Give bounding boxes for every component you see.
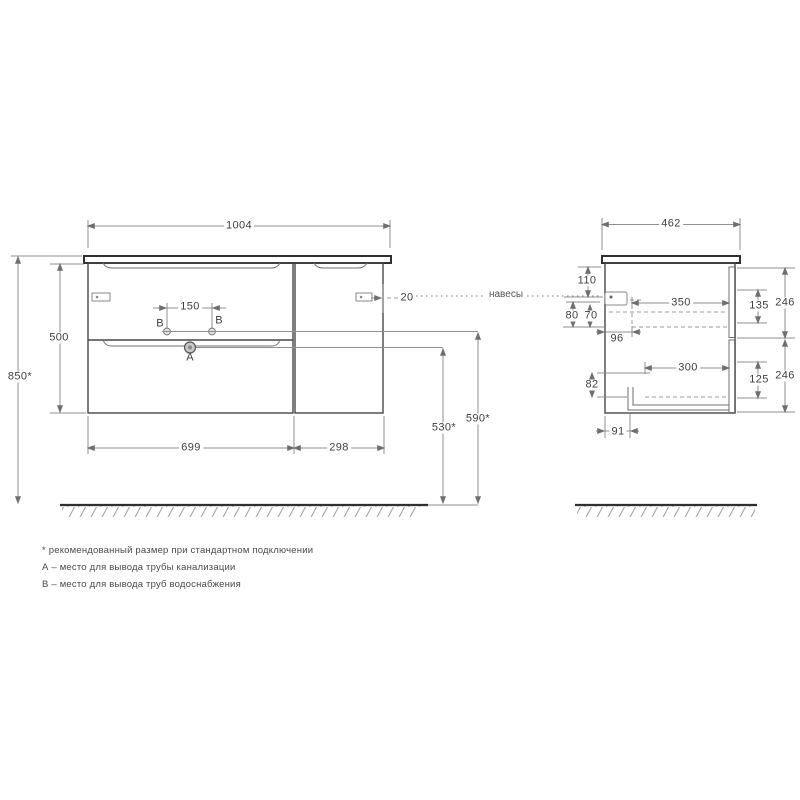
label-hole-spacing: 150 [178,302,202,313]
label-marker-a: A [186,353,194,364]
label-bottom-inner-height: 82 [583,380,600,391]
right-extension-lines [737,268,795,412]
label-marker-b-left: B [156,319,164,330]
front-left-section [88,263,293,413]
footnote-marker-b: В – место для вывода труб водоснабжения [42,580,241,590]
label-siphon-inset: 91 [609,427,626,438]
floor-side [575,505,757,517]
hidden-drawer-lines [609,312,728,397]
vanity-drawing [0,0,800,800]
front-view [84,256,391,413]
label-hanger-offset: 20 [398,293,415,304]
label-upper-front-height: 246 [773,298,797,309]
technical-drawing-page: 1004 500 850* 150 20 B B A 699 298 530* … [0,0,800,800]
label-hanger-offset-inner: 70 [582,311,599,322]
footnote-marker-a: А – место для вывода трубы канализации [42,563,235,573]
label-bottom-right-width: 298 [327,443,351,454]
label-upper-inner-height: 135 [747,301,771,312]
label-hanger-offset-outer: 80 [563,311,580,322]
label-bottom-left-width: 699 [179,443,203,454]
label-hanger-inset: 96 [608,334,625,345]
label-supply-height: 590* [464,414,492,425]
hanger-bracket-left [92,293,110,301]
hanger-bracket-right [356,293,372,301]
footnote-recommended-size: * рекомендованный размер при стандартном… [42,546,313,556]
label-upper-clearance: 350 [669,298,693,309]
label-depth: 462 [659,219,683,230]
label-lower-clearance: 300 [676,363,700,374]
label-lower-front-height: 246 [773,371,797,382]
label-total-height: 850* [6,372,34,383]
label-drain-height: 530* [430,423,458,434]
label-hangers-callout: навесы [486,290,526,300]
dim-hanger-offset-20 [371,284,400,313]
label-marker-b-right: B [215,316,223,327]
countertop-front [84,256,391,263]
front-right-door [295,263,383,413]
label-top-to-hanger: 110 [576,276,599,287]
floor-front [60,505,478,517]
label-front-width: 1004 [224,221,254,232]
siphon-cutout [628,387,729,410]
dim-bottom-inner-82 [592,373,650,397]
countertop-side [602,256,740,263]
label-cabinet-height: 500 [47,333,71,344]
label-lower-inner-height: 125 [747,375,771,386]
